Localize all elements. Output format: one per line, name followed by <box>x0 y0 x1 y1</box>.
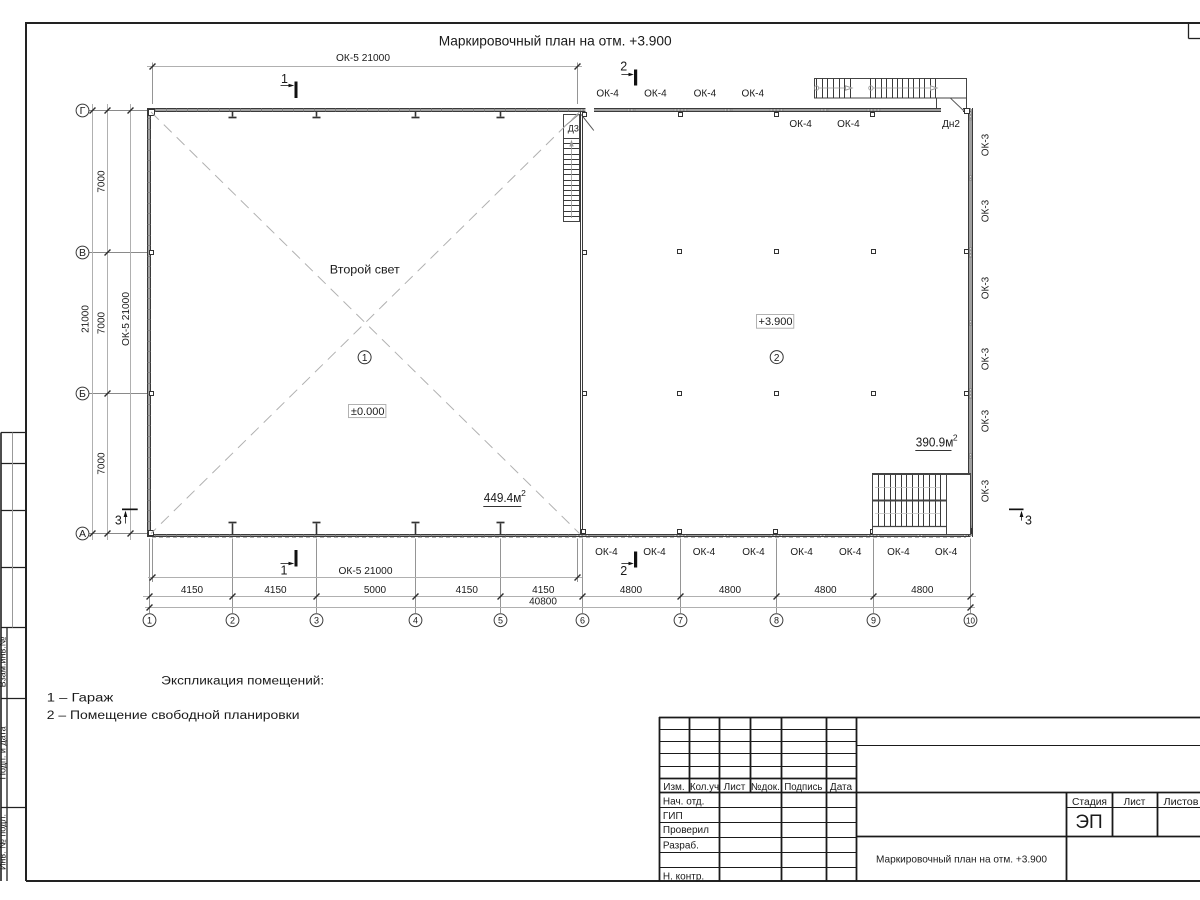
svg-text:ОК-4: ОК-4 <box>935 547 958 558</box>
svg-text:Нач. отд.: Нач. отд. <box>663 796 705 807</box>
svg-text:ОК-4: ОК-4 <box>596 89 619 100</box>
svg-text:ОК-4: ОК-4 <box>693 547 716 558</box>
svg-text:4150: 4150 <box>532 585 555 596</box>
svg-text:3: 3 <box>115 513 122 527</box>
svg-text:4800: 4800 <box>620 585 643 596</box>
svg-text:7000: 7000 <box>96 170 107 193</box>
svg-text:ОК-4: ОК-4 <box>742 547 765 558</box>
svg-text:2 – Помещение свободной планир: 2 – Помещение свободной планировки <box>47 710 300 722</box>
svg-text:Подпись: Подпись <box>784 782 822 793</box>
svg-text:40800: 40800 <box>529 597 557 608</box>
svg-text:4800: 4800 <box>911 585 934 596</box>
svg-text:ОК-5 21000: ОК-5 21000 <box>121 292 132 346</box>
svg-text:5: 5 <box>498 616 503 626</box>
svg-text:4: 4 <box>413 616 418 626</box>
svg-text:8: 8 <box>774 616 779 626</box>
svg-text:ОК-4: ОК-4 <box>839 547 862 558</box>
svg-text:ОК-5 21000: ОК-5 21000 <box>336 53 390 64</box>
svg-text:ГИП: ГИП <box>663 811 683 822</box>
svg-text:1: 1 <box>281 564 288 578</box>
svg-text:Д3: Д3 <box>568 124 579 134</box>
svg-text:2: 2 <box>521 488 526 498</box>
svg-text:9: 9 <box>871 616 876 626</box>
svg-text:ОК-4: ОК-4 <box>790 547 813 558</box>
svg-text:6: 6 <box>580 616 585 626</box>
svg-text:Дн2: Дн2 <box>942 119 960 130</box>
svg-text:ОК-3: ОК-3 <box>981 479 992 502</box>
svg-text:2: 2 <box>953 433 958 443</box>
svg-text:ОК-3: ОК-3 <box>981 276 992 299</box>
svg-text:Лист: Лист <box>724 782 746 793</box>
svg-text:Стадия: Стадия <box>1072 797 1107 808</box>
svg-text:449.4м: 449.4м <box>484 490 522 505</box>
svg-text:Кол.уч: Кол.уч <box>690 782 719 793</box>
svg-text:1: 1 <box>147 616 152 626</box>
svg-text:ЭП: ЭП <box>1075 812 1102 833</box>
svg-text:Маркировочный план на отм. +3.: Маркировочный план на отм. +3.900 <box>876 854 1047 866</box>
svg-text:2: 2 <box>620 564 627 578</box>
svg-text:Н. контр.: Н. контр. <box>663 871 704 882</box>
svg-text:±0.000: ±0.000 <box>351 406 385 418</box>
svg-text:4800: 4800 <box>814 585 837 596</box>
svg-text:А: А <box>79 528 86 540</box>
svg-text:10: 10 <box>966 617 975 626</box>
svg-text:Разраб.: Разраб. <box>663 839 699 851</box>
svg-text:ОК-3: ОК-3 <box>981 133 992 156</box>
svg-text:Лист: Лист <box>1124 797 1146 808</box>
svg-text:ОК-3: ОК-3 <box>981 409 992 432</box>
svg-text:Изм.: Изм. <box>663 782 684 793</box>
svg-text:ОК-3: ОК-3 <box>981 347 992 370</box>
svg-text:4150: 4150 <box>181 585 204 596</box>
svg-text:21000: 21000 <box>81 305 92 333</box>
svg-text:ОК-4: ОК-4 <box>644 89 667 100</box>
svg-text:2: 2 <box>230 616 235 626</box>
svg-text:Подп. и дата: Подп. и дата <box>0 726 7 779</box>
svg-text:ОК-3: ОК-3 <box>981 199 992 222</box>
svg-text:3: 3 <box>314 616 319 626</box>
svg-text:ОК-4: ОК-4 <box>837 119 860 130</box>
svg-text:1: 1 <box>281 72 288 86</box>
svg-text:Экспликация помещений:: Экспликация помещений: <box>161 676 324 688</box>
svg-text:ОК-4: ОК-4 <box>789 119 812 130</box>
svg-text:Г: Г <box>80 105 86 117</box>
svg-text:4150: 4150 <box>456 585 479 596</box>
svg-text:2: 2 <box>620 60 627 74</box>
svg-text:Листов: Листов <box>1164 797 1199 808</box>
svg-text:7: 7 <box>678 616 683 626</box>
svg-text:3: 3 <box>1025 513 1032 527</box>
svg-text:4800: 4800 <box>719 585 742 596</box>
svg-text:7000: 7000 <box>96 452 107 475</box>
svg-text:Маркировочный план на отм. +3.: Маркировочный план на отм. +3.900 <box>439 33 672 49</box>
svg-text:390.9м: 390.9м <box>916 435 954 450</box>
svg-text:Инв. № подл.: Инв. № подл. <box>0 814 7 870</box>
svg-text:1 – Гараж: 1 – Гараж <box>47 692 114 704</box>
svg-text:4150: 4150 <box>264 585 287 596</box>
svg-text:Второй свет: Второй свет <box>330 265 401 277</box>
svg-text:№док.: №док. <box>751 782 780 793</box>
svg-text:5000: 5000 <box>364 585 387 596</box>
svg-text:ОК-4: ОК-4 <box>742 89 765 100</box>
svg-text:Дата: Дата <box>830 782 853 793</box>
svg-text:ОК-4: ОК-4 <box>595 547 618 558</box>
svg-text:Взам.инв.№: Взам.инв.№ <box>0 636 7 687</box>
svg-text:Б: Б <box>79 388 86 400</box>
svg-text:ОК-4: ОК-4 <box>887 547 910 558</box>
svg-text:ОК-4: ОК-4 <box>643 547 666 558</box>
svg-text:ОК-4: ОК-4 <box>694 89 717 100</box>
svg-text:+3.900: +3.900 <box>759 316 793 328</box>
svg-text:7000: 7000 <box>96 311 107 334</box>
svg-text:2: 2 <box>774 353 780 364</box>
svg-text:В: В <box>79 247 86 259</box>
svg-text:Проверил: Проверил <box>663 825 709 836</box>
svg-text:ОК-5 21000: ОК-5 21000 <box>339 566 393 577</box>
svg-text:1: 1 <box>362 353 368 364</box>
